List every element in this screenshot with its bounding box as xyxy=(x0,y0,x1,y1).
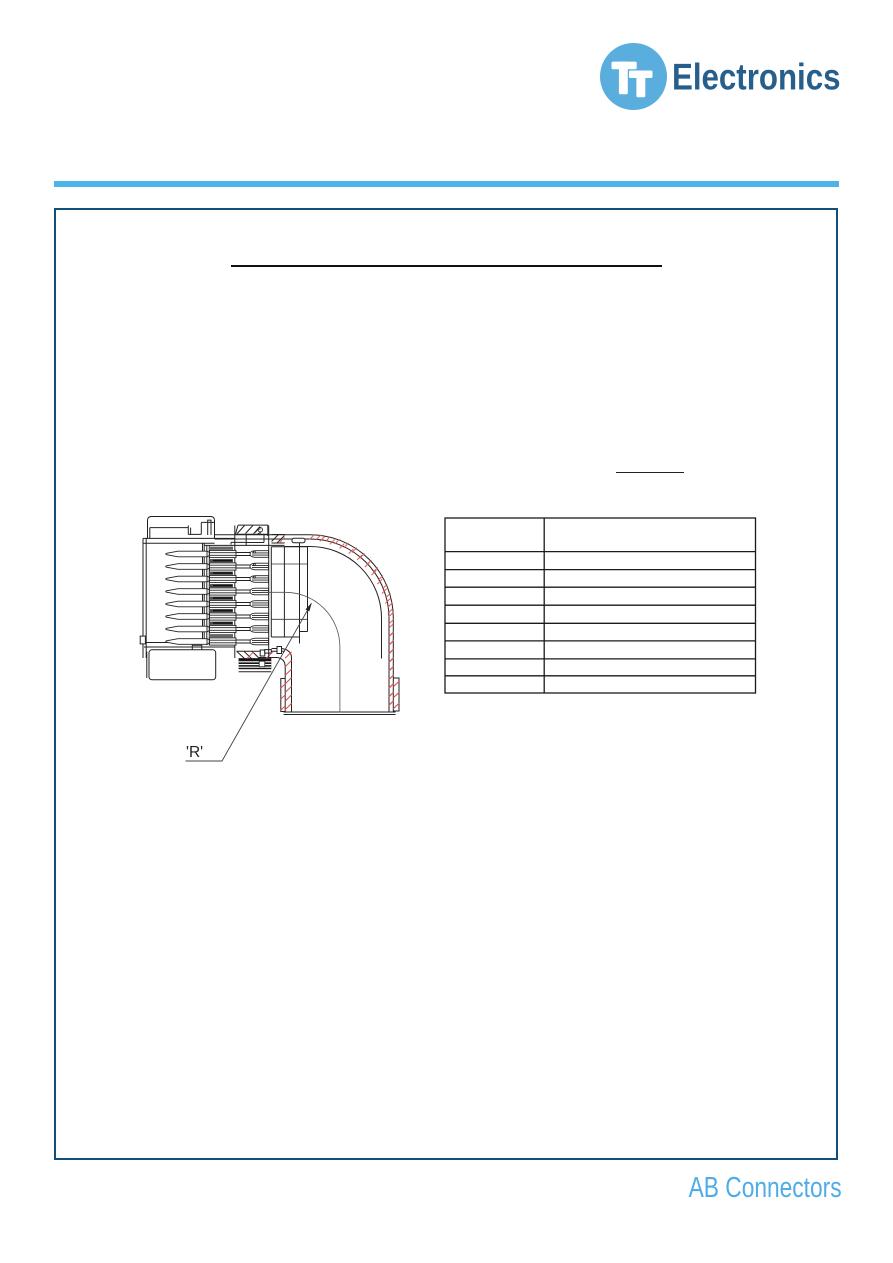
svg-text:Electronics: Electronics xyxy=(672,56,841,97)
svg-text:AB Connectors: AB Connectors xyxy=(689,1172,842,1204)
svg-text:'R': 'R' xyxy=(186,744,203,761)
